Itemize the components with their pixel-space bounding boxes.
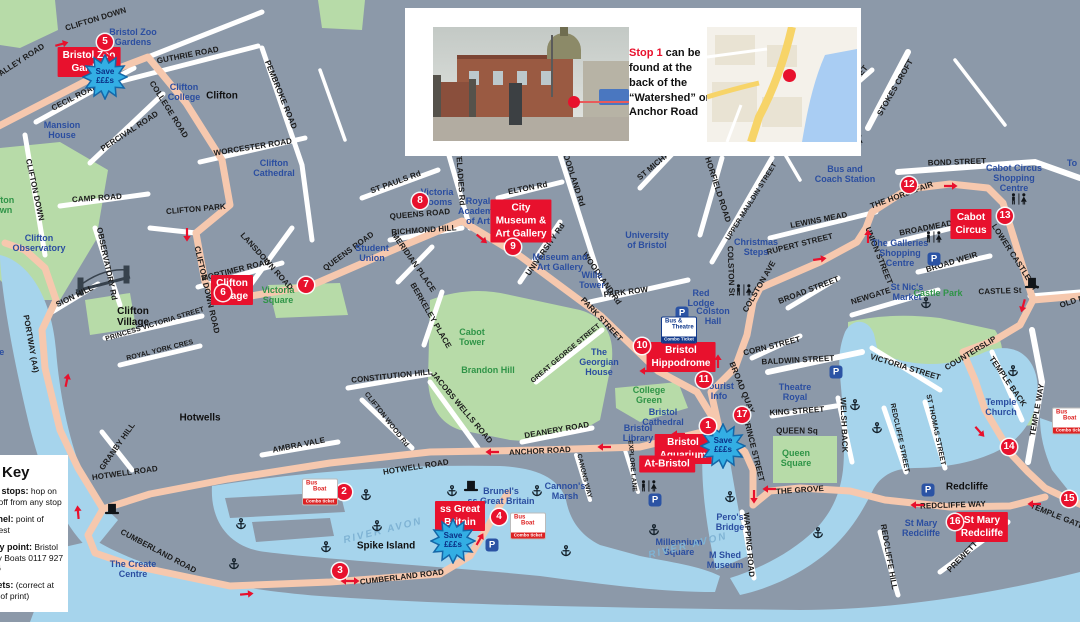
route-arrow xyxy=(485,448,499,457)
street-label: WELSH BACK xyxy=(838,397,849,452)
street-label: TEMPLE BACK xyxy=(986,355,1027,408)
place-label: University of Bristol xyxy=(625,230,669,250)
place-label: Bristol Cathedral xyxy=(642,407,684,427)
attraction-label: City Museum & Art Gallery xyxy=(490,200,551,243)
route-arrow xyxy=(474,231,491,247)
stop-marker-2: 2 xyxy=(336,484,352,500)
bus-theatre-combo-ticket-badge: Bus &TheatreCombo Ticket xyxy=(661,317,697,344)
stop-marker-7: 7 xyxy=(298,277,314,293)
street-label: WORCESTER ROAD xyxy=(213,137,293,158)
street-label: VALLEY ROAD xyxy=(0,43,47,82)
place-label: Theatre Royal xyxy=(779,382,812,402)
place-label: The Galleries Shopping Centre xyxy=(872,238,929,268)
street-label: JACOBS WELLS ROAD xyxy=(428,370,493,446)
street-label: RICHMOND HILL xyxy=(391,224,457,237)
ferry-anchor-icon xyxy=(724,491,737,504)
save-money-badge: Save£££s xyxy=(82,54,128,100)
place-label: The Georgian House xyxy=(579,347,619,377)
route-arrow xyxy=(183,228,192,242)
street-label: HOTWELL ROAD xyxy=(383,458,450,477)
street-label: BERKELEY PLACE xyxy=(408,282,453,351)
place-label: Spike Island xyxy=(357,540,415,551)
ferry-anchor-icon xyxy=(1007,365,1020,378)
street-label: AMBRA VALE xyxy=(272,437,326,456)
toilets-icon xyxy=(735,284,754,297)
parking-icon: P xyxy=(649,494,662,507)
route-arrow xyxy=(73,505,83,520)
street-label: VICTORIA STREET xyxy=(869,353,941,383)
place-label: Cabot Circus Shopping Centre xyxy=(981,163,1047,193)
street-label: BROAD STREET xyxy=(777,275,840,306)
street-label: EXPLORE LANE xyxy=(626,440,638,492)
street-label: COLLEGE ROAD xyxy=(147,80,189,140)
street-label: GREAT GEORGE STREET xyxy=(530,323,603,386)
stop-marker-1: 1 xyxy=(700,418,716,434)
attraction-label: Bristol Hippodrome xyxy=(647,342,716,372)
street-label: ROYAL YORK CRES xyxy=(126,339,195,363)
stop-marker-10: 10 xyxy=(634,338,650,354)
parking-icon: P xyxy=(486,539,499,552)
stop-marker-6: 6 xyxy=(215,285,231,301)
stop-marker-11: 11 xyxy=(696,372,712,388)
stop-marker-15: 15 xyxy=(1061,491,1077,507)
brunel-tophat-icon xyxy=(105,503,120,515)
route-arrow xyxy=(1027,500,1041,509)
place-label: Bristol Library xyxy=(623,423,654,443)
route-arrow xyxy=(714,354,723,368)
key-title: Key xyxy=(2,464,68,481)
ferry-anchor-icon xyxy=(228,558,241,571)
street-label: ANCHOR ROAD xyxy=(509,446,571,458)
place-label: Queen Square xyxy=(781,448,812,468)
route-arrow xyxy=(639,367,653,376)
place-label: Museum and Art Gallery xyxy=(532,252,587,272)
map-key: Key Bus stops: hop on and off from any s… xyxy=(0,455,68,612)
route-arrow xyxy=(597,443,611,452)
place-label: To xyxy=(1067,158,1077,168)
street-label: PARK STREET xyxy=(578,296,623,344)
place-label: Hotwells xyxy=(179,412,220,423)
brunel-tophat-icon xyxy=(1025,277,1040,289)
street-label: QUEENS ROAD xyxy=(389,208,450,222)
place-label: Wills Tower xyxy=(579,270,605,290)
place-label: St Nic's Market xyxy=(891,282,924,302)
street-label: REDCLIFFE HILL xyxy=(878,524,898,591)
toilets-icon xyxy=(640,480,659,493)
street-label: BOND STREET xyxy=(928,158,987,169)
place-label: Red Lodge xyxy=(688,288,715,308)
stop-marker-13: 13 xyxy=(997,208,1013,224)
ferry-anchor-icon xyxy=(371,520,384,533)
route-arrow xyxy=(750,490,759,504)
key-item: Ferry point: Bristol Ferry Boats 0117 92… xyxy=(0,542,66,573)
route-arrow xyxy=(812,254,827,265)
place-label: Cannon's Marsh xyxy=(545,481,586,501)
street-label: ST PAULS Rd xyxy=(370,170,423,197)
street-label: PARK ROW xyxy=(603,286,648,300)
place-label: Cabot Tower xyxy=(459,327,485,347)
stop-marker-8: 8 xyxy=(412,193,428,209)
street-label: GRANBY HILL xyxy=(98,422,137,473)
ferry-anchor-icon xyxy=(531,485,544,498)
street-label: KING STREET xyxy=(769,406,824,419)
place-label: The Create Centre xyxy=(110,559,157,579)
stop-marker-4: 4 xyxy=(491,509,507,525)
ferry-anchor-icon xyxy=(560,545,573,558)
parking-icon: P xyxy=(928,253,941,266)
street-label: CANONS WAY xyxy=(575,453,593,499)
place-label: Brandon Hill xyxy=(461,365,515,375)
place-label: St Mary Redcliffe xyxy=(902,518,940,538)
place-label: Victoria Square xyxy=(262,285,295,305)
key-item: Bus stops: hop on and off from any stop xyxy=(0,486,66,507)
route-arrow xyxy=(671,430,685,439)
attraction-label: St Mary Redcliffe xyxy=(956,512,1008,542)
street-label: CUMBERLAND ROAD xyxy=(359,568,444,587)
place-label: Colston Hall xyxy=(696,306,730,326)
stop-marker-17: 17 xyxy=(734,407,750,423)
street-label: CLIFTON PARK xyxy=(166,203,227,217)
street-label: WAPPING ROAD xyxy=(741,512,756,577)
bus-boat-combo-ticket-badge: BusBoatCombo ticket xyxy=(510,513,546,540)
street-label: QUEEN Sq xyxy=(776,428,818,437)
route-arrow xyxy=(944,182,958,191)
place-label: M Shed Museum xyxy=(707,550,744,570)
brunel-tophat-icon xyxy=(464,480,479,492)
street-label: ELTON Rd xyxy=(507,181,548,197)
street-label: COUNTERSLIP xyxy=(944,335,999,373)
place-label: Clifton Village xyxy=(117,306,149,328)
parking-icon: P xyxy=(830,366,843,379)
street-label: CLIFTON DOWN xyxy=(23,158,45,222)
place-label: Bristol Zoo Gardens xyxy=(109,27,157,47)
bristol-sightseeing-map: CLIFTON DOWNVALLEY ROADGUTHRIE ROADPEMBR… xyxy=(0,0,1080,622)
place-label: Clifton College xyxy=(168,82,201,102)
key-items: Bus stops: hop on and off from any stopB… xyxy=(0,486,68,601)
ferry-anchor-icon xyxy=(871,422,884,435)
place-label: Clifton Cathedral xyxy=(253,158,295,178)
street-label: MERIDIAN PLACE xyxy=(389,232,437,295)
street-label: LEWINS MEAD xyxy=(790,211,849,231)
stop-marker-12: 12 xyxy=(901,177,917,193)
street-label: THE GROVE xyxy=(776,485,825,497)
ferry-anchor-icon xyxy=(360,489,373,502)
ferry-anchor-icon xyxy=(648,524,661,537)
ferry-anchor-icon xyxy=(446,485,459,498)
stop-marker-16: 16 xyxy=(947,514,963,530)
place-label: Temple Church xyxy=(985,397,1017,417)
route-arrow xyxy=(864,229,873,243)
place-label: Clifton xyxy=(206,90,238,101)
place-label: Millennium Square xyxy=(656,537,703,557)
street-label: SION HILL xyxy=(55,284,95,310)
stop1-caption: Stop 1 can be found at the back of the “… xyxy=(629,46,715,120)
street-label: QUEENS ROAD xyxy=(322,231,376,274)
street-label: UPPER MAULDIN STREET xyxy=(725,162,779,242)
street-label: OLD MARKET xyxy=(1059,285,1080,310)
minimap-stop-dot xyxy=(783,69,796,82)
attraction-label: Cabot Circus xyxy=(950,209,991,239)
ferry-anchor-icon xyxy=(849,399,862,412)
route-arrow xyxy=(972,424,988,440)
route-arrow xyxy=(1017,298,1029,314)
stop1-info-inset: Stop 1 can be found at the back of the “… xyxy=(405,8,861,156)
street-label: CLIFTON WOOD Rd xyxy=(362,391,410,449)
street-label: REDCLIFFE WAY xyxy=(920,500,986,511)
street-label: PORTWAY (A4) xyxy=(21,314,40,373)
street-label: CUMBERLAND ROAD xyxy=(119,528,198,576)
street-label: OBSERVATORY Rd xyxy=(94,227,118,301)
route-arrow xyxy=(240,589,255,599)
street-label: PERCIVAL ROAD xyxy=(100,110,161,154)
stop-marker-3: 3 xyxy=(332,563,348,579)
stop-marker-9: 9 xyxy=(505,239,521,255)
street-label: TEMPLE WAY xyxy=(1029,383,1047,437)
street-label: CORN STREET xyxy=(743,336,802,359)
callout-line-left xyxy=(580,101,629,103)
street-label: NEWGATE xyxy=(850,287,892,308)
place-label: Bus and Coach Station xyxy=(815,164,876,184)
place-label: Mansion House xyxy=(44,120,81,140)
route-arrow xyxy=(762,485,776,494)
ferry-anchor-icon xyxy=(812,527,825,540)
attraction-label: At-Bristol xyxy=(639,456,695,473)
route-arrow xyxy=(910,501,924,510)
toilets-icon xyxy=(925,231,944,244)
stop-marker-5: 5 xyxy=(97,34,113,50)
street-label: CLIFTON DOWN xyxy=(64,6,127,33)
key-item: Toilets: (correct at time of print) xyxy=(0,580,66,601)
stop-marker-14: 14 xyxy=(1001,439,1017,455)
street-label: CASTLE St xyxy=(978,287,1021,297)
street-label: STOKES CROFT xyxy=(876,58,916,118)
street-label: BALDWIN STREET xyxy=(761,355,834,368)
ferry-anchor-icon xyxy=(920,297,933,310)
stop1-caption-highlight: Stop 1 xyxy=(629,47,663,59)
street-label: WOODLAND Rd xyxy=(580,251,623,307)
street-label: HOTWELL ROAD xyxy=(92,465,159,483)
bus-boat-combo-ticket-badge: BusBoatCombo ticket xyxy=(1052,408,1080,435)
route-arrow xyxy=(61,372,73,388)
place-label: Clifton Observatory xyxy=(12,233,65,253)
street-label: HORFIELD ROAD xyxy=(702,156,732,223)
street-label: REDCLIFFE STREET xyxy=(888,403,910,474)
toilets-icon xyxy=(1010,193,1029,206)
street-label: PRINCESS VICTORIA STREET xyxy=(105,306,206,344)
place-label: Christmas Steps xyxy=(734,237,778,257)
place-label: Clifton Down xyxy=(0,195,14,215)
bus-boat-combo-ticket-badge: BusBoatCombo ticket xyxy=(302,479,338,506)
street-label: ST THOMAS STREET xyxy=(924,394,947,466)
street-label: GUTHRIE ROAD xyxy=(156,46,220,67)
ferry-anchor-icon xyxy=(235,518,248,531)
place-label: Redcliffe xyxy=(946,481,988,492)
place-label: Student Union xyxy=(355,243,389,263)
save-money-badge: Save£££s xyxy=(430,518,476,564)
street-label: CONSTITUTION HILL xyxy=(351,368,433,385)
street-label: DEANERY ROAD xyxy=(524,421,590,441)
place-label: Centre xyxy=(0,347,4,357)
street-label: CAMP ROAD xyxy=(72,193,123,205)
parking-icon: P xyxy=(922,484,935,497)
place-label: Pero's Bridge xyxy=(716,512,745,532)
ferry-anchor-icon xyxy=(320,541,333,554)
street-label: PEMBROKE ROAD xyxy=(262,59,298,130)
photo-stop-dot xyxy=(568,96,580,108)
stop1-minimap xyxy=(707,27,857,142)
watershed-photo xyxy=(433,27,629,141)
place-label: College Green xyxy=(633,385,666,405)
key-item: Brunel: point of interest xyxy=(0,514,66,535)
